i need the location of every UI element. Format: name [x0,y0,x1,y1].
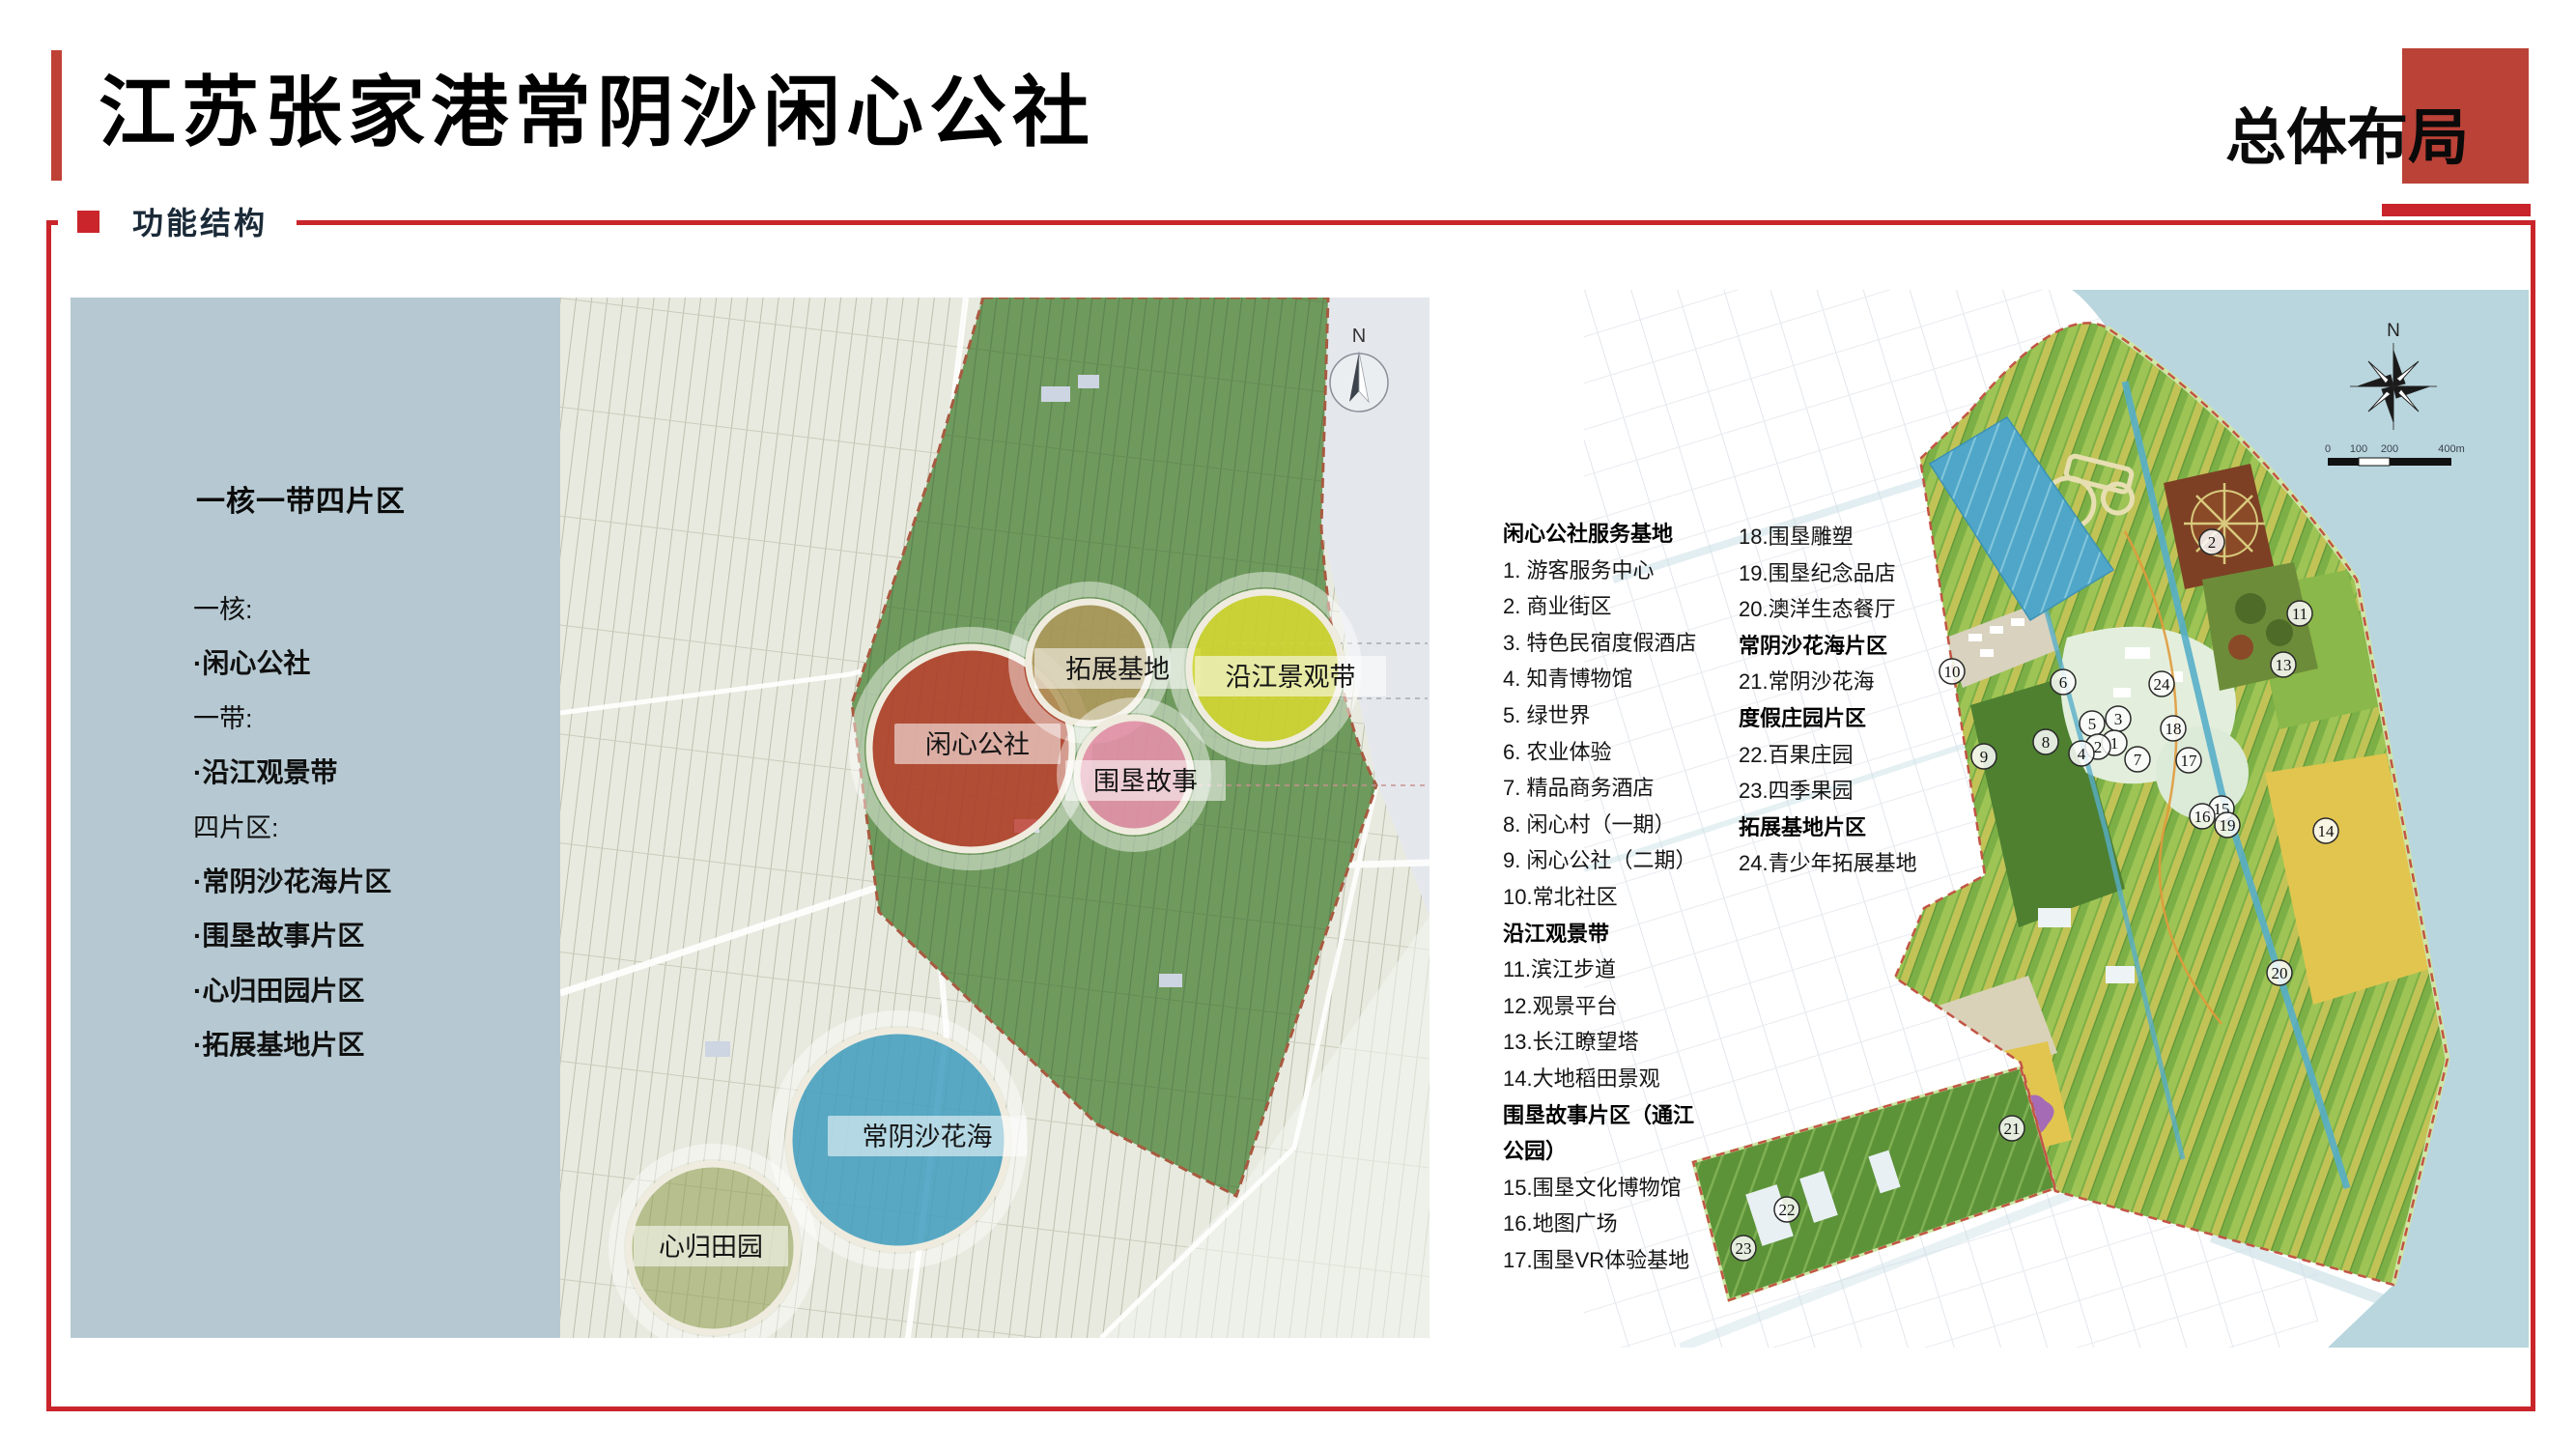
section-label: 功能结构 [58,198,297,244]
svg-text:2: 2 [2208,533,2217,552]
map-marker-21: 21 [1999,1116,2024,1141]
legend-item-column1-10: 10.常北社区 [1503,879,1708,916]
section-title: 功能结构 [132,199,268,243]
scale-label-0: 0 [2325,443,2331,455]
legend-item-column1-14: 13.长江瞭望塔 [1503,1024,1708,1061]
legend-item-column1-18: 16.地图广场 [1503,1206,1708,1242]
legend-item-column1-17: 15.围垦文化博物馆 [1503,1170,1708,1207]
legend-item-column1-8: 8. 闲心村（一期） [1503,807,1708,843]
map-marker-5: 5 [2080,711,2105,736]
structure-line-4: 四片区: [193,798,391,853]
svg-text:11: 11 [2292,605,2307,623]
legend-item-column1-4: 4. 知青博物馆 [1503,661,1708,697]
legend-header-column2-5: 度假庄园片区 [1739,700,2038,737]
legend-item-column2-6: 22.百果庄园 [1739,737,2038,774]
slide: 江苏张家港常阴沙闲心公社 总体布局 功能结构 一核一带四片区 一核:·闲心公社一… [0,0,2576,1449]
legend-column-1: 闲心公社服务基地1. 游客服务中心2. 商业街区3. 特色民宿度假酒店4. 知青… [1503,516,1708,1278]
svg-text:18: 18 [2166,720,2182,738]
map-marker-18: 18 [2161,716,2186,741]
legend-item-column2-7: 23.四季果园 [1739,773,2038,810]
svg-text:8: 8 [2042,733,2051,752]
page-title: 江苏张家港常阴沙闲心公社 [99,70,1095,158]
legend-item-column1-7: 7. 精品商务酒店 [1503,770,1708,807]
svg-text:21: 21 [2004,1120,2021,1138]
structure-panel: 一核一带四片区 一核:·闲心公社一带:·沿江观景带四片区:·常阴沙花海片区·围垦… [71,298,560,1338]
map-marker-7: 7 [2125,747,2150,772]
legend-header-column1-0: 闲心公社服务基地 [1503,516,1708,553]
legend-column-2: 18.围垦雕塑19.围垦纪念品店20.澳洋生态餐厅常阴沙花海片区21.常阴沙花海… [1739,519,2038,882]
map-marker-6: 6 [2051,669,2076,695]
legend-item-column1-3: 3. 特色民宿度假酒店 [1503,625,1708,662]
structure-heading: 一核一带四片区 [196,477,406,520]
svg-text:2: 2 [2094,738,2103,756]
legend-item-column2-4: 21.常阴沙花海 [1739,664,2038,700]
svg-text:5: 5 [2088,715,2097,733]
map-marker-2: 2 [2199,529,2224,554]
svg-text:6: 6 [2059,673,2068,692]
legend-header-column2-8: 拓展基地片区 [1739,810,2038,846]
map-marker-14: 14 [2313,818,2338,843]
map-marker-17: 17 [2176,748,2201,773]
scale-label-1: 100 [2350,443,2367,455]
svg-text:22: 22 [1779,1201,1796,1219]
legend-item-column1-9: 9. 闲心公社（二期） [1503,842,1708,879]
map-marker-11: 11 [2287,601,2312,626]
map-marker-13: 13 [2271,652,2296,677]
scale-label-3: 400m [2438,443,2465,455]
legend-item-column1-5: 5. 绿世界 [1503,697,1708,734]
structure-list: 一核:·闲心公社一带:·沿江观景带四片区:·常阴沙花海片区·围垦故事片区·心归田… [193,580,391,1071]
zone-bubble-label-2: 围垦故事 [1093,767,1198,796]
structure-line-8: ·拓展基地片区 [193,1016,391,1071]
zone-bubble-5: 心归田园 [616,1151,809,1338]
map-marker-23: 23 [1731,1236,1756,1261]
svg-text:19: 19 [2220,816,2236,835]
svg-text:N: N [2387,321,2400,341]
svg-text:N: N [1352,326,1366,347]
title-accent-bar [51,50,62,181]
map-marker-4: 4 [2069,741,2094,766]
map-marker-16: 16 [2190,804,2215,829]
svg-text:1: 1 [2110,734,2119,753]
svg-text:20: 20 [2272,964,2288,982]
legend-item-column2-0: 18.围垦雕塑 [1739,519,2038,555]
legend-item-column1-15: 14.大地稻田景观 [1503,1061,1708,1097]
map-marker-20: 20 [2267,960,2292,985]
legend-item-column1-13: 12.观景平台 [1503,988,1708,1025]
svg-text:4: 4 [2078,745,2086,763]
left-map-figure: 闲心公社拓展基地围垦故事沿江景观带常阴沙花海心归田园 N [560,298,1430,1338]
svg-text:13: 13 [2276,656,2292,674]
map-marker-3: 3 [2106,706,2131,731]
structure-line-1: ·闲心公社 [193,635,391,690]
legend-item-column2-2: 20.澳洋生态餐厅 [1739,591,2038,628]
map-marker-19: 19 [2215,812,2240,838]
corner-underline-bar [2382,204,2531,216]
structure-line-6: ·围垦故事片区 [193,907,391,962]
structure-line-2: 一带: [193,689,391,744]
structure-line-3: ·沿江观景带 [193,744,391,799]
svg-text:14: 14 [2318,822,2335,840]
legend-item-column2-9: 24.青少年拓展基地 [1739,845,2038,882]
scale-label-2: 200 [2381,443,2398,455]
zone-bubble-label-1: 拓展基地 [1065,655,1170,684]
legend-item-column1-2: 2. 商业街区 [1503,588,1708,625]
legend-item-column1-6: 6. 农业体验 [1503,734,1708,771]
svg-text:17: 17 [2181,752,2198,770]
chapter-tag: 总体布局 [2154,89,2469,177]
svg-text:24: 24 [2154,675,2171,694]
legend-header-column1-16: 围垦故事片区（通江公园） [1503,1097,1708,1170]
svg-text:23: 23 [1736,1239,1752,1258]
right-map-figure: N 0100200400m 21113106243518812497171516… [1584,290,2529,1348]
legend-item-column1-1: 1. 游客服务中心 [1503,553,1708,589]
svg-text:16: 16 [2194,808,2211,826]
legend-header-column2-3: 常阴沙花海片区 [1739,628,2038,665]
map-marker-22: 22 [1774,1197,1799,1222]
structure-line-7: ·心归田园片区 [193,962,391,1017]
legend-item-column1-19: 17.围垦VR体验基地 [1503,1242,1708,1279]
map-marker-24: 24 [2149,671,2174,696]
legend-item-column1-12: 11.滨江步道 [1503,952,1708,988]
structure-line-0: 一核: [193,580,391,635]
svg-text:3: 3 [2114,710,2123,728]
legend-item-column2-1: 19.围垦纪念品店 [1739,555,2038,592]
zone-bubble-label-0: 闲心公社 [925,730,1030,759]
legend-header-column1-11: 沿江观景带 [1503,916,1708,952]
zone-bubble-label-4: 常阴沙花海 [863,1122,993,1151]
zone-bubble-label-3: 沿江景观带 [1226,663,1356,692]
zone-bubble-label-5: 心归田园 [659,1233,763,1262]
svg-text:7: 7 [2134,751,2142,769]
structure-line-5: ·常阴沙花海片区 [193,853,391,908]
square-bullet-icon [77,211,99,233]
